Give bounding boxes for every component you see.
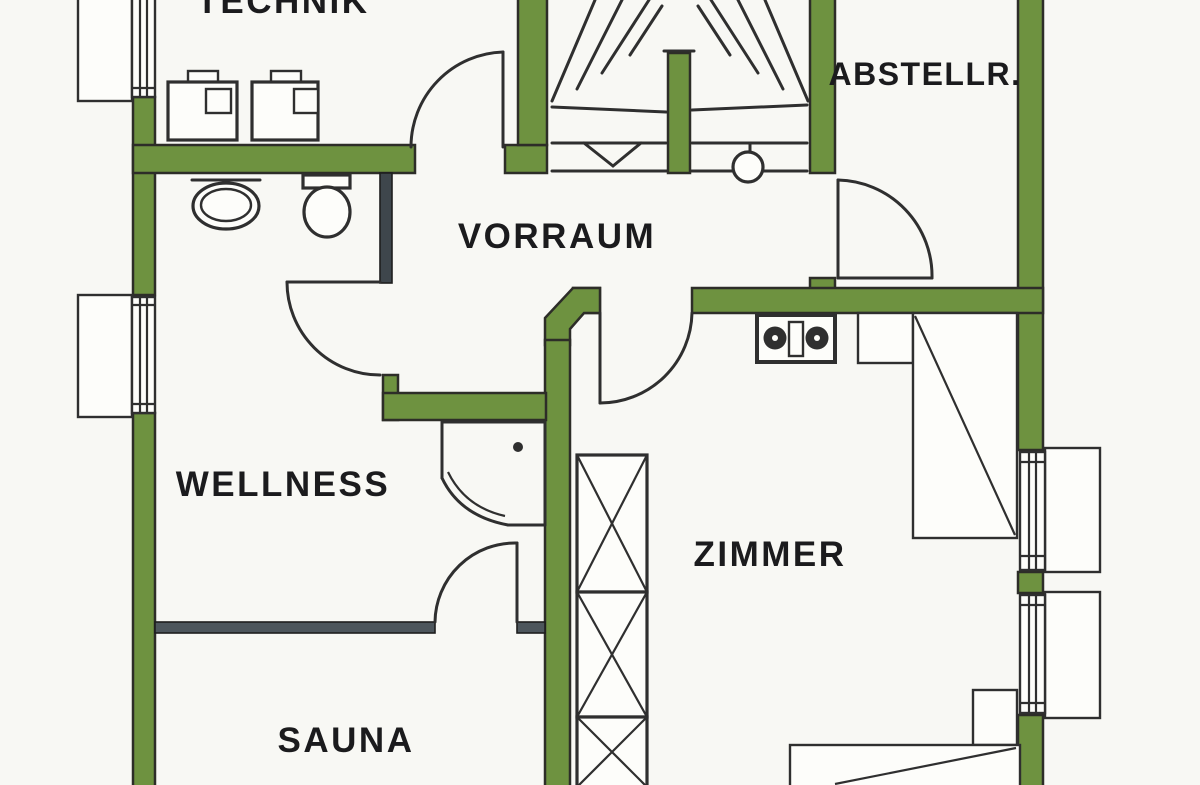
- equipment-unit-2: [252, 71, 318, 140]
- shower-drain-dot: [513, 442, 523, 452]
- technik-bottom-wall: [133, 145, 547, 173]
- room-label-sauna: SAUNA: [278, 721, 415, 760]
- technik-stair-wall: [518, 0, 547, 145]
- window-mid-left: [78, 295, 155, 417]
- wardrobe: [858, 313, 1017, 538]
- sauna-door: [435, 543, 517, 622]
- wc-partition-wall: [380, 173, 392, 283]
- nightstand: [973, 690, 1017, 745]
- chimney-x-hatch: [577, 455, 647, 785]
- equipment-unit-1: [168, 71, 237, 140]
- sink-basin: [192, 180, 260, 229]
- wellness-sauna-wall: [155, 622, 545, 633]
- center-wall-vertical: [545, 340, 570, 785]
- window-right-lower: [1020, 592, 1100, 718]
- wc-door: [287, 282, 380, 375]
- technik-door: [411, 52, 503, 147]
- exterior-wall-left: [133, 97, 155, 785]
- bed: [790, 745, 1020, 785]
- abstellraum-door: [838, 180, 932, 278]
- double-knob-fixture: [757, 315, 835, 362]
- staircase: [552, 0, 808, 182]
- room-label-vorraum: VORRAUM: [458, 217, 656, 256]
- stair-newel-circle: [733, 152, 763, 182]
- floor-plan: TECHNIK VORRAUM ABSTELLR. WELLNESS ZIMME…: [0, 0, 1200, 785]
- stair-spine-wall: [668, 53, 690, 173]
- room-label-zimmer: ZIMMER: [693, 535, 846, 574]
- room-label-wellness: WELLNESS: [176, 465, 390, 504]
- room-label-abstellraum: ABSTELLR.: [828, 56, 1021, 92]
- window-top-left: [78, 0, 155, 101]
- stair-right-wall: [810, 0, 835, 292]
- zimmer-door: [600, 313, 692, 403]
- wellness-top-wall: [383, 375, 546, 420]
- stair-direction-arrow: [584, 143, 641, 166]
- toilet: [303, 175, 350, 237]
- corner-shower: [442, 422, 545, 525]
- window-right-upper: [1020, 448, 1100, 572]
- room-label-technik: TECHNIK: [196, 0, 369, 21]
